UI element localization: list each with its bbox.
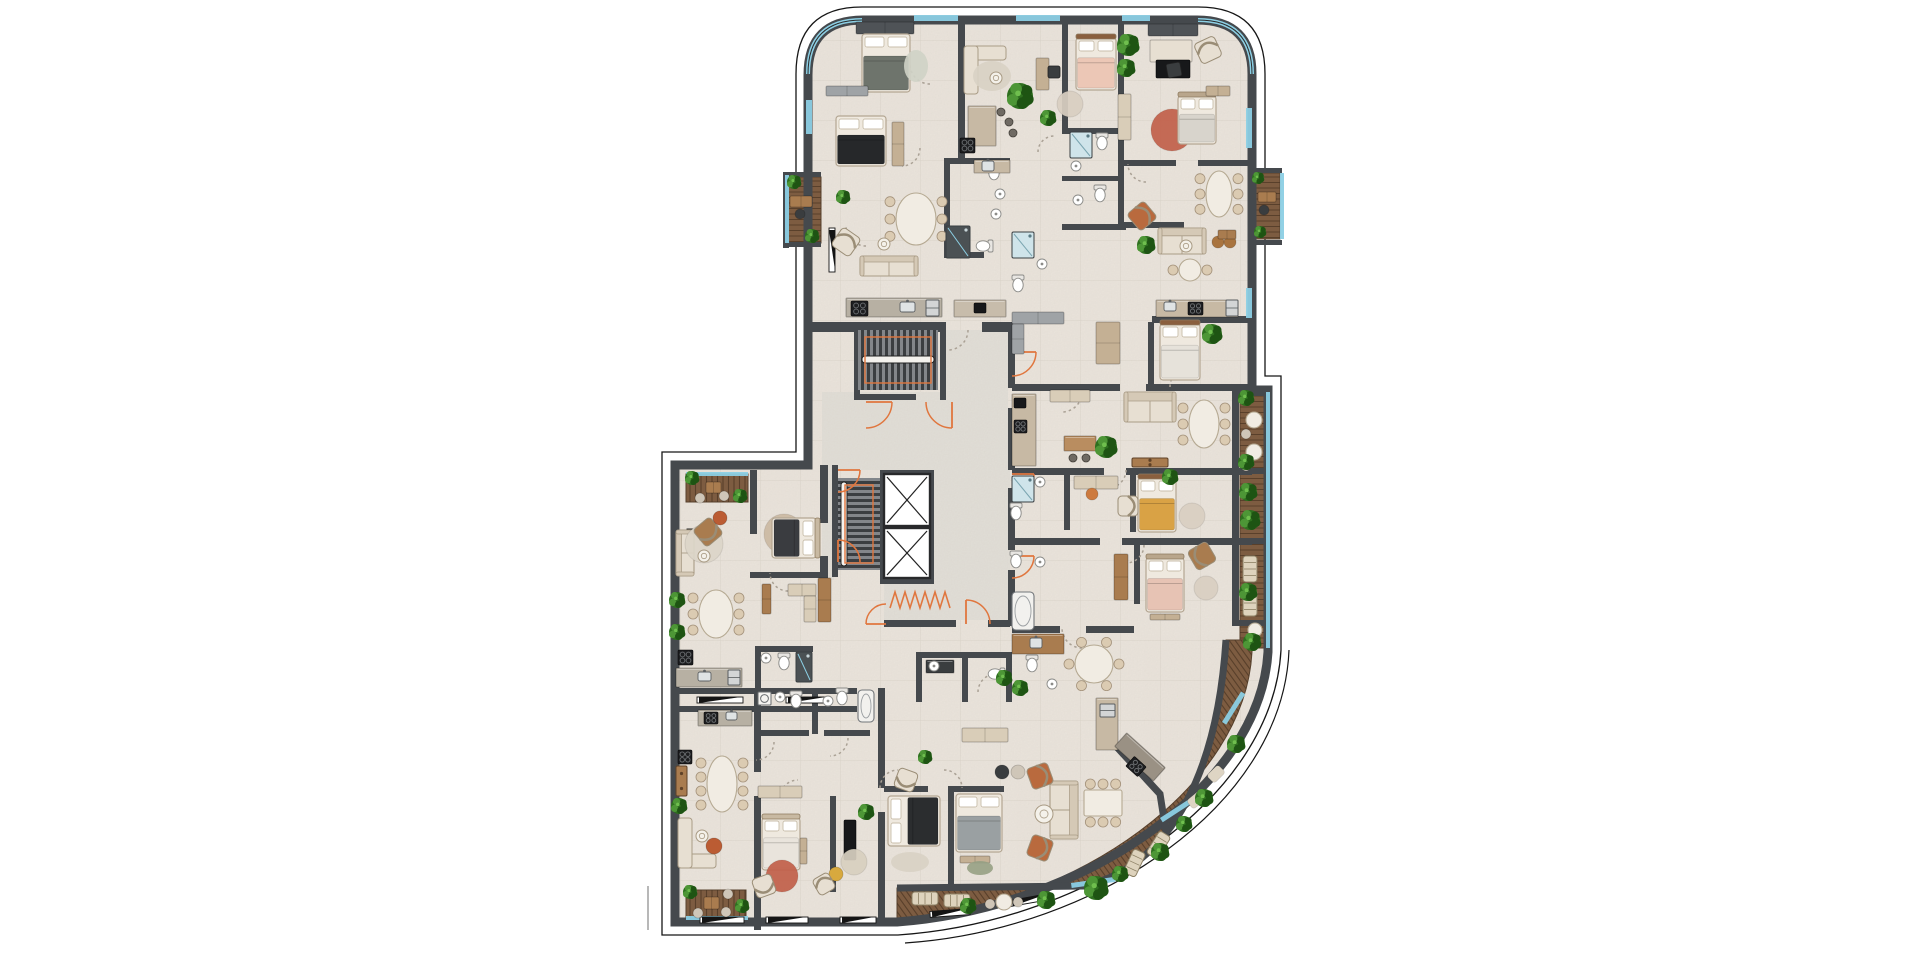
- rug: [967, 861, 993, 875]
- toilet: [1026, 655, 1038, 672]
- interior-wall: [820, 465, 828, 523]
- shower: [1012, 232, 1034, 258]
- bathroom-sink: [1037, 259, 1047, 269]
- dining-table: [1084, 779, 1122, 827]
- interior-wall: [755, 646, 813, 652]
- plant: [1084, 876, 1109, 900]
- cabinet: [800, 838, 807, 864]
- pouf: [706, 838, 722, 854]
- bathroom-sink: [995, 189, 1005, 199]
- interior-wall: [854, 394, 916, 400]
- coffee-table: [1035, 805, 1053, 823]
- pouf: [1013, 897, 1023, 907]
- pouf: [1011, 765, 1025, 779]
- window-symbol: [697, 697, 743, 703]
- bed: [1076, 34, 1116, 90]
- sofa: [860, 256, 918, 276]
- pouf: [1241, 429, 1251, 439]
- cabinet: [1012, 324, 1024, 354]
- cooktop: [1014, 420, 1027, 433]
- plant: [1176, 816, 1192, 832]
- cabinet: [856, 22, 914, 34]
- bed: [1178, 92, 1216, 144]
- chair: [1048, 66, 1060, 78]
- interior-wall: [1086, 626, 1134, 633]
- interior-wall: [878, 688, 885, 788]
- bed: [1146, 554, 1184, 612]
- cooktop: [1188, 302, 1203, 315]
- bed: [862, 34, 910, 92]
- plant: [1227, 735, 1245, 753]
- toilet: [778, 653, 790, 670]
- elevator: [884, 474, 930, 526]
- pouf: [1259, 205, 1269, 215]
- rug: [891, 852, 929, 872]
- cabinet: [962, 728, 1008, 742]
- cabinet: [1118, 94, 1131, 140]
- pouf: [721, 907, 731, 917]
- pouf: [985, 899, 995, 909]
- bathroom-sink: [1035, 477, 1045, 487]
- interior-wall: [1134, 544, 1140, 604]
- cabinet: [1050, 390, 1090, 402]
- console-table: [1132, 458, 1168, 467]
- bathtub: [858, 690, 874, 722]
- round-rug: [1057, 91, 1083, 117]
- dining-table: [1178, 400, 1230, 448]
- interior-wall: [948, 786, 1004, 792]
- bed: [1160, 320, 1200, 380]
- fridge: [926, 300, 939, 316]
- window-glazing: [1280, 173, 1284, 239]
- sun-lounger: [912, 892, 938, 905]
- cabinet: [704, 897, 719, 909]
- coffee-table: [698, 550, 710, 562]
- interior-wall: [1122, 222, 1184, 228]
- bathroom-sink: [929, 661, 939, 671]
- bar-stool: [1069, 454, 1077, 462]
- bar-stool: [1082, 454, 1090, 462]
- desk: [1036, 58, 1049, 90]
- interior-wall: [948, 792, 954, 884]
- cabinet: [1218, 230, 1236, 239]
- cabinet: [762, 584, 771, 614]
- round-dining-table: [1246, 412, 1262, 428]
- pouf: [1086, 488, 1098, 500]
- shower: [796, 652, 812, 682]
- cabinet: [790, 196, 812, 207]
- plant: [1112, 866, 1128, 882]
- cabinet: [892, 122, 904, 166]
- cabinet: [788, 584, 816, 596]
- desk: [1150, 40, 1192, 62]
- pouf: [723, 889, 733, 899]
- shower: [946, 226, 970, 258]
- window-glazing: [1246, 108, 1252, 148]
- interior-wall: [940, 322, 946, 400]
- toilet: [1096, 133, 1108, 150]
- plant: [1195, 789, 1213, 807]
- chair: [1166, 62, 1182, 78]
- window-symbol: [829, 228, 835, 272]
- window-symbol: [700, 917, 744, 923]
- armchair: [1118, 496, 1138, 516]
- interior-wall: [824, 730, 870, 736]
- tv-unit: [974, 303, 986, 313]
- plant: [1151, 843, 1169, 861]
- console-table: [676, 766, 687, 796]
- interior-wall: [757, 730, 809, 736]
- plant: [1037, 891, 1055, 909]
- interior-wall: [1146, 384, 1252, 391]
- interior-wall: [884, 620, 956, 627]
- cabinet: [1258, 192, 1276, 202]
- bathroom-sink: [1047, 679, 1057, 689]
- round-rug: [1194, 576, 1218, 600]
- interior-wall: [916, 652, 922, 702]
- cooktop: [851, 301, 868, 316]
- toilet: [1010, 503, 1022, 520]
- interior-wall: [754, 796, 761, 930]
- elevator: [884, 528, 930, 578]
- dining-table: [1195, 171, 1243, 217]
- interior-wall: [1062, 224, 1126, 230]
- kitchen-counter: [1064, 436, 1096, 451]
- window-symbol: [840, 917, 876, 923]
- interior-wall: [1122, 160, 1176, 166]
- dining-table: [688, 590, 744, 638]
- bar-stool: [1005, 118, 1013, 126]
- interior-wall: [988, 620, 1010, 627]
- pouf: [695, 493, 705, 503]
- sun-lounger: [1243, 556, 1257, 582]
- cabinet: [1150, 614, 1180, 620]
- pouf: [719, 491, 729, 501]
- shower: [1070, 132, 1092, 158]
- interior-wall: [812, 688, 818, 734]
- bathroom-sink: [1071, 161, 1081, 171]
- fridge: [1226, 300, 1238, 316]
- cooktop: [678, 750, 692, 764]
- fridge: [1100, 704, 1115, 717]
- cabinet: [1012, 312, 1064, 324]
- toilet: [1012, 275, 1024, 292]
- cabinet: [1148, 24, 1198, 36]
- window-glazing: [1016, 15, 1060, 21]
- window-symbol: [766, 917, 808, 923]
- bathroom-sink: [761, 653, 771, 663]
- interior-wall: [1012, 538, 1100, 545]
- balcony-wall: [1252, 240, 1282, 245]
- shower: [1012, 476, 1034, 502]
- floor-plan: [0, 0, 1920, 960]
- toilet: [790, 691, 802, 708]
- coffee-table: [1180, 240, 1192, 252]
- interior-wall: [1232, 390, 1239, 626]
- cabinet: [804, 596, 816, 622]
- tv-unit: [1014, 398, 1026, 408]
- interior-wall: [750, 470, 757, 534]
- washing-machine: [758, 692, 771, 705]
- bed: [888, 796, 940, 846]
- window-glazing: [914, 15, 958, 21]
- round-rug: [1179, 503, 1205, 529]
- interior-wall: [1064, 474, 1070, 530]
- floor-plan-page: [0, 0, 1920, 960]
- cabinet: [1096, 322, 1120, 364]
- bed: [956, 794, 1002, 852]
- rug: [904, 50, 928, 82]
- coffee-table: [696, 830, 708, 842]
- sofa: [1124, 392, 1176, 422]
- interior-wall: [750, 572, 822, 578]
- cabinet: [1074, 476, 1118, 489]
- bathroom-sink: [775, 692, 785, 702]
- interior-wall: [1148, 322, 1154, 384]
- sofa: [1050, 781, 1078, 839]
- cooktop: [960, 138, 975, 153]
- bathroom-sink: [1035, 557, 1045, 567]
- cabinet: [758, 786, 802, 798]
- staircase: [858, 330, 938, 390]
- toilet: [836, 688, 848, 705]
- pouf: [995, 765, 1009, 779]
- cabinet: [826, 86, 868, 96]
- round-rug: [841, 849, 867, 875]
- cabinet: [706, 482, 721, 493]
- interior-wall: [1118, 128, 1124, 230]
- bathroom-sink: [1073, 195, 1083, 205]
- cabinet: [1206, 86, 1230, 96]
- bathtub: [1012, 592, 1034, 630]
- interior-wall: [1062, 176, 1124, 181]
- cooktop: [704, 712, 718, 724]
- bathroom-sink: [991, 209, 1001, 219]
- window-glazing: [1266, 392, 1270, 648]
- cooktop: [678, 650, 693, 665]
- pouf: [713, 511, 727, 525]
- bar-stool: [997, 108, 1005, 116]
- bed: [836, 116, 886, 166]
- fridge: [728, 670, 740, 685]
- pouf: [693, 908, 703, 918]
- interior-wall: [878, 812, 885, 920]
- toilet: [976, 240, 993, 252]
- pouf: [795, 209, 805, 219]
- bar-stool: [1009, 129, 1017, 137]
- dining-table: [885, 193, 947, 245]
- interior-wall: [982, 322, 1010, 332]
- coffee-table: [878, 238, 890, 250]
- toilet: [1010, 551, 1022, 568]
- interior-wall: [1198, 160, 1252, 166]
- cabinet: [818, 578, 831, 622]
- coffee-table: [990, 72, 1002, 84]
- bed: [772, 518, 820, 558]
- window-glazing: [1246, 288, 1252, 318]
- window-glazing: [1122, 15, 1150, 21]
- interior-wall: [962, 652, 968, 702]
- round-dining-table: [996, 894, 1012, 910]
- window-glazing: [806, 100, 812, 134]
- bathroom-sink: [823, 696, 833, 706]
- interior-wall: [755, 646, 761, 690]
- toilet: [1094, 185, 1106, 202]
- cabinet: [1114, 554, 1128, 600]
